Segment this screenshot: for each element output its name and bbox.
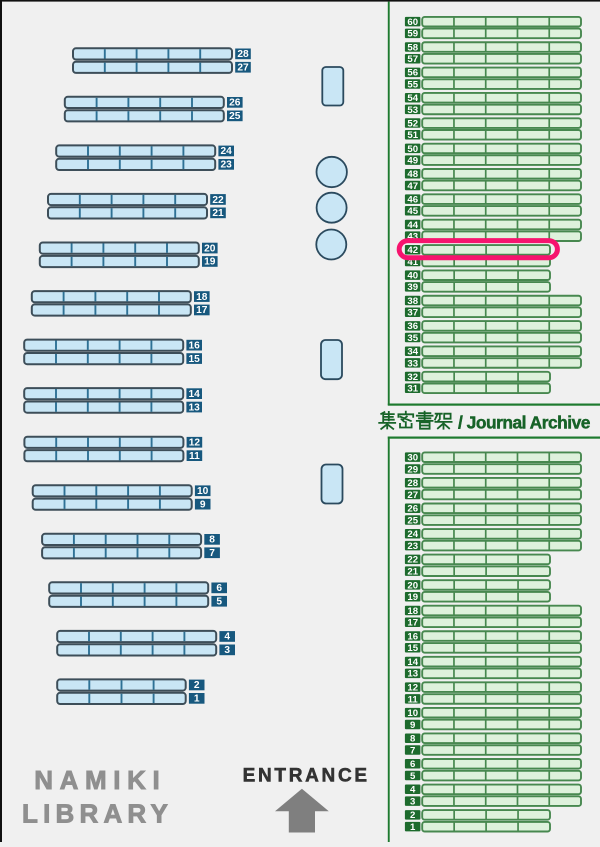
svg-text:22: 22 xyxy=(212,195,224,206)
svg-text:21: 21 xyxy=(212,208,224,219)
svg-text:7: 7 xyxy=(410,745,415,756)
svg-text:6: 6 xyxy=(216,583,222,594)
svg-text:10: 10 xyxy=(197,486,209,497)
svg-text:37: 37 xyxy=(407,308,418,319)
svg-text:36: 36 xyxy=(407,321,418,332)
svg-text:9: 9 xyxy=(410,720,415,731)
svg-text:35: 35 xyxy=(407,333,418,344)
svg-text:7: 7 xyxy=(209,548,215,559)
svg-text:19: 19 xyxy=(407,592,418,603)
svg-text:21: 21 xyxy=(407,567,418,578)
svg-text:52: 52 xyxy=(407,118,418,129)
svg-text:44: 44 xyxy=(407,220,418,231)
svg-text:16: 16 xyxy=(189,340,201,351)
svg-text:24: 24 xyxy=(407,529,418,540)
svg-text:17: 17 xyxy=(407,618,418,629)
svg-text:25: 25 xyxy=(407,515,418,526)
svg-text:18: 18 xyxy=(407,606,418,617)
svg-text:8: 8 xyxy=(410,734,416,745)
svg-text:32: 32 xyxy=(407,372,418,383)
svg-text:23: 23 xyxy=(221,160,233,171)
svg-text:23: 23 xyxy=(407,541,418,552)
svg-text:15: 15 xyxy=(189,354,201,365)
svg-text:29: 29 xyxy=(407,464,418,475)
svg-text:50: 50 xyxy=(407,144,418,155)
svg-text:14: 14 xyxy=(189,389,201,400)
svg-text:2: 2 xyxy=(410,810,415,821)
svg-text:12: 12 xyxy=(189,438,201,449)
svg-text:59: 59 xyxy=(407,29,418,40)
svg-text:24: 24 xyxy=(221,146,233,157)
svg-text:53: 53 xyxy=(407,105,418,116)
svg-text:30: 30 xyxy=(407,453,418,464)
svg-text:47: 47 xyxy=(407,181,418,192)
svg-text:25: 25 xyxy=(229,111,241,122)
svg-text:ENTRANCE: ENTRANCE xyxy=(243,765,370,786)
svg-text:56: 56 xyxy=(407,68,418,79)
svg-text:6: 6 xyxy=(410,759,415,770)
svg-text:14: 14 xyxy=(407,657,418,668)
svg-text:1: 1 xyxy=(194,694,200,705)
svg-text:2: 2 xyxy=(194,680,200,691)
svg-text:4: 4 xyxy=(410,785,416,796)
svg-text:60: 60 xyxy=(407,17,418,28)
svg-text:34: 34 xyxy=(407,347,418,358)
svg-text:51: 51 xyxy=(407,130,418,141)
svg-text:45: 45 xyxy=(407,206,418,217)
svg-text:5: 5 xyxy=(410,771,416,782)
svg-text:3: 3 xyxy=(224,645,230,656)
svg-text:4: 4 xyxy=(224,632,230,643)
svg-text:46: 46 xyxy=(407,194,418,205)
svg-text:49: 49 xyxy=(407,155,418,166)
svg-text:19: 19 xyxy=(204,257,216,268)
svg-text:58: 58 xyxy=(407,42,418,53)
svg-text:26: 26 xyxy=(407,504,418,515)
svg-text:27: 27 xyxy=(237,63,249,74)
svg-text:28: 28 xyxy=(237,49,249,60)
svg-text:17: 17 xyxy=(196,305,208,316)
svg-text:16: 16 xyxy=(407,631,418,642)
svg-text:11: 11 xyxy=(408,694,419,705)
svg-text:10: 10 xyxy=(407,708,418,719)
svg-text:40: 40 xyxy=(407,271,418,282)
svg-text:48: 48 xyxy=(407,169,418,180)
svg-text:33: 33 xyxy=(407,358,418,369)
svg-text:54: 54 xyxy=(407,93,418,104)
svg-text:31: 31 xyxy=(407,384,418,395)
svg-text:11: 11 xyxy=(189,451,200,462)
svg-text:28: 28 xyxy=(407,478,418,489)
svg-text:15: 15 xyxy=(407,643,418,654)
svg-text:5: 5 xyxy=(216,597,222,608)
svg-text:13: 13 xyxy=(189,402,201,413)
svg-text:9: 9 xyxy=(200,499,206,510)
svg-text:18: 18 xyxy=(196,292,208,303)
svg-text:22: 22 xyxy=(407,555,418,566)
svg-text:20: 20 xyxy=(407,580,418,591)
svg-text:20: 20 xyxy=(204,243,216,254)
svg-text:39: 39 xyxy=(407,282,418,293)
svg-text:/ Journal Archive: / Journal Archive xyxy=(458,413,591,433)
svg-text:27: 27 xyxy=(407,490,418,501)
svg-text:NAMIKI: NAMIKI xyxy=(34,765,166,795)
svg-text:12: 12 xyxy=(407,682,418,693)
svg-text:26: 26 xyxy=(229,98,241,109)
svg-text:55: 55 xyxy=(407,79,418,90)
svg-text:LIBRARY: LIBRARY xyxy=(22,799,173,829)
svg-text:1: 1 xyxy=(410,822,416,833)
svg-text:42: 42 xyxy=(407,245,418,256)
svg-text:57: 57 xyxy=(407,54,418,65)
svg-text:38: 38 xyxy=(407,296,418,307)
svg-text:3: 3 xyxy=(410,796,415,807)
svg-text:8: 8 xyxy=(209,535,215,546)
svg-text:13: 13 xyxy=(407,669,418,680)
